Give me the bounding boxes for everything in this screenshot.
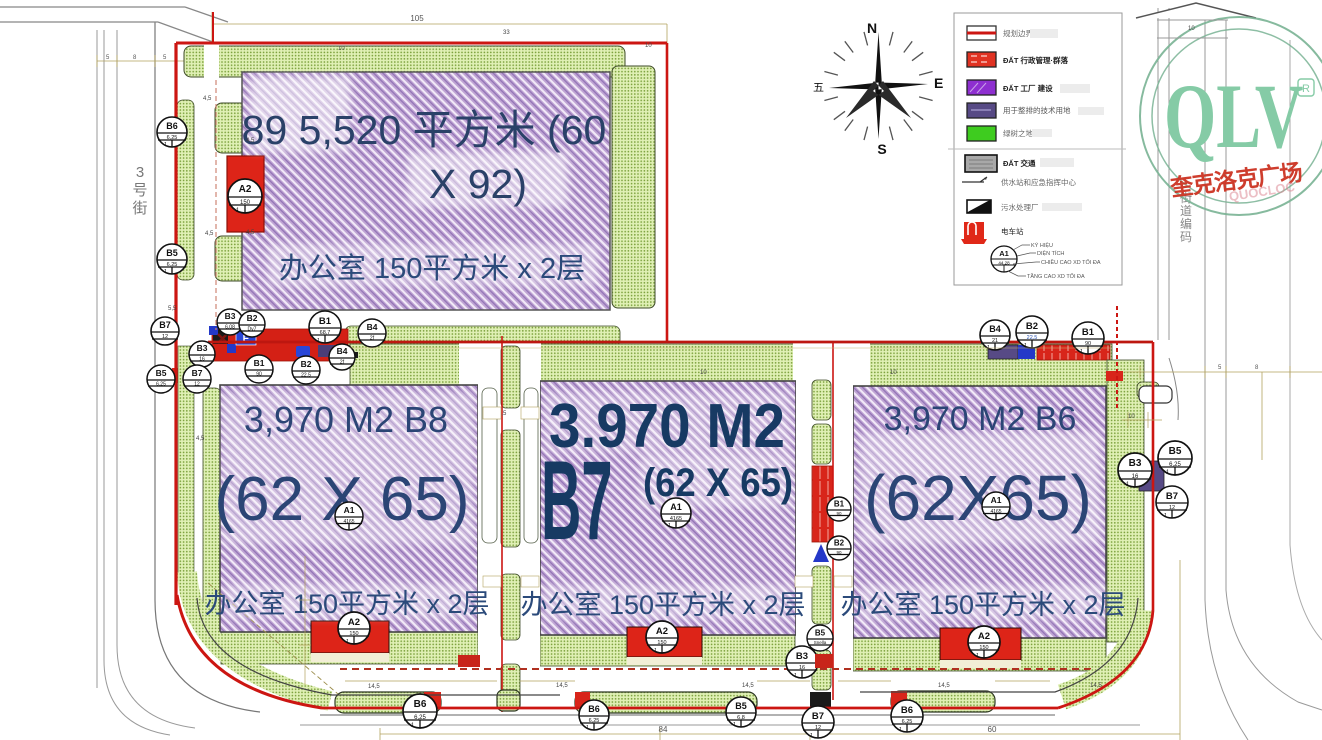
svg-text:B6: B6 [901, 705, 913, 716]
svg-text:B3: B3 [1129, 458, 1142, 469]
svg-text:办公室 150平方米 x 2层: 办公室 150平方米 x 2层 [279, 252, 585, 285]
svg-text:1: 1 [668, 523, 671, 529]
svg-text:12: 12 [194, 382, 200, 388]
svg-text:编: 编 [1180, 216, 1192, 231]
svg-text:21: 21 [992, 338, 998, 344]
svg-text:B3: B3 [796, 651, 808, 662]
svg-text:A1: A1 [344, 505, 355, 515]
svg-text:22,5: 22,5 [301, 373, 311, 379]
svg-text:供水站和应急指挥中心: 供水站和应急指挥中心 [1001, 177, 1076, 187]
svg-text:S: S [877, 141, 886, 157]
svg-text:电车站: 电车站 [1001, 226, 1024, 236]
svg-text:码: 码 [1180, 230, 1192, 244]
svg-text:4165: 4165 [670, 516, 682, 522]
svg-text:90: 90 [836, 550, 842, 555]
svg-text:2f: 2f [340, 360, 345, 366]
svg-text:6,8: 6,8 [737, 715, 745, 721]
svg-text:B4: B4 [367, 322, 378, 332]
svg-text:规划边界: 规划边界 [1003, 28, 1033, 38]
svg-text:10: 10 [890, 370, 897, 376]
svg-text:B5: B5 [815, 629, 826, 638]
svg-text:1: 1 [164, 142, 167, 148]
svg-text:2f: 2f [370, 336, 375, 342]
svg-text:16: 16 [1132, 474, 1139, 480]
svg-text:ĐẤT 工厂 建设: ĐẤT 工厂 建设 [1003, 83, 1053, 93]
svg-text:1: 1 [164, 269, 167, 275]
svg-text:B4: B4 [989, 324, 1001, 334]
svg-text:150: 150 [979, 645, 988, 651]
svg-text:90: 90 [256, 372, 262, 378]
svg-text:B5: B5 [1169, 446, 1182, 457]
svg-text:10: 10 [1128, 414, 1135, 420]
svg-text:6,25: 6,25 [902, 719, 913, 725]
svg-text:A1: A1 [670, 502, 682, 512]
svg-text:Snella: Snella [814, 640, 827, 645]
svg-text:84: 84 [659, 725, 668, 734]
svg-text:B6: B6 [166, 121, 178, 131]
svg-text:4,5: 4,5 [246, 138, 255, 144]
svg-text:B3: B3 [197, 343, 208, 353]
svg-text:10: 10 [645, 43, 652, 49]
svg-text:TẦNG CAO XD TỐI ĐA: TẦNG CAO XD TỐI ĐA [1027, 273, 1085, 280]
svg-text:4165: 4165 [990, 509, 1001, 515]
svg-text:6,25: 6,25 [156, 382, 166, 388]
svg-text:B7: B7 [812, 711, 824, 722]
svg-text:B5: B5 [735, 701, 747, 711]
svg-text:4,5: 4,5 [246, 230, 255, 236]
svg-text:89 5,520 平方米 (60: 89 5,520 平方米 (60 [242, 107, 607, 153]
svg-text:B7: B7 [1166, 491, 1178, 502]
svg-text:3: 3 [136, 164, 144, 181]
svg-text:60: 60 [988, 725, 997, 734]
svg-text:150: 150 [657, 640, 666, 646]
svg-text:CHIỀU CAO XD TỐI ĐA: CHIỀU CAO XD TỐI ĐA [1041, 259, 1101, 266]
svg-text:ĐẤT 行政管理·群落: ĐẤT 行政管理·群落 [1003, 55, 1068, 65]
svg-text:14,5: 14,5 [1090, 683, 1102, 689]
svg-text:14,5: 14,5 [556, 683, 568, 689]
svg-text:KÝ HIỆU: KÝ HIỆU [1031, 241, 1053, 249]
svg-text:B6: B6 [588, 704, 600, 714]
svg-text:6,25: 6,25 [167, 262, 178, 268]
svg-text:办公室 150平方米 x 2层: 办公室 150平方米 x 2层 [520, 590, 805, 620]
svg-text:B4: B4 [337, 346, 348, 356]
svg-text:B7: B7 [541, 438, 613, 563]
svg-text:10: 10 [1188, 26, 1195, 32]
svg-text:B6: B6 [414, 699, 427, 710]
svg-text:绿树之地: 绿树之地 [1003, 128, 1033, 138]
svg-text:B2: B2 [834, 539, 845, 548]
svg-text:A2: A2 [239, 184, 252, 195]
svg-text:Dv7: Dv7 [248, 327, 257, 333]
svg-text:B1: B1 [834, 500, 845, 509]
svg-text:A2: A2 [656, 626, 668, 637]
svg-text:1: 1 [794, 673, 797, 679]
svg-text:6,25: 6,25 [1169, 462, 1181, 468]
svg-text:B2: B2 [301, 359, 312, 369]
svg-text:14,5: 14,5 [368, 684, 380, 690]
svg-text:6,25: 6,25 [167, 135, 178, 141]
svg-text:10: 10 [700, 370, 707, 376]
svg-text:105: 105 [410, 14, 424, 23]
svg-text:1: 1 [733, 722, 736, 728]
svg-text:4165: 4165 [343, 519, 354, 525]
svg-text:B3: B3 [225, 311, 236, 321]
svg-text:ĐẤT 交通: ĐẤT 交通 [1003, 158, 1036, 168]
svg-text:6,08: 6,08 [225, 325, 235, 331]
svg-text:14,5: 14,5 [742, 683, 754, 689]
svg-text:5,5: 5,5 [168, 306, 177, 312]
svg-text:150: 150 [240, 200, 251, 206]
svg-text:(62 X 65): (62 X 65) [643, 461, 793, 505]
svg-text:12: 12 [1169, 505, 1175, 511]
svg-text:1: 1 [810, 733, 813, 739]
svg-text:B5: B5 [166, 248, 178, 258]
svg-text:DIỆN TÍCH: DIỆN TÍCH [1037, 249, 1064, 257]
svg-text:B1: B1 [319, 316, 332, 327]
svg-text:16: 16 [199, 357, 205, 363]
svg-text:A2: A2 [978, 631, 990, 642]
svg-text:B5: B5 [156, 368, 167, 378]
svg-text:道: 道 [1180, 204, 1192, 218]
svg-text:33: 33 [503, 30, 510, 36]
svg-text:1: 1 [586, 725, 589, 731]
svg-text:R: R [1302, 83, 1310, 95]
svg-text:16: 16 [799, 665, 805, 671]
svg-text:B7: B7 [159, 320, 171, 330]
svg-text:1: 1 [899, 727, 902, 733]
svg-text:150: 150 [349, 631, 358, 637]
svg-text:14,5: 14,5 [938, 683, 950, 689]
svg-text:90: 90 [1085, 341, 1091, 347]
svg-text:3,970 M2 B6: 3,970 M2 B6 [884, 400, 1077, 438]
svg-text:12: 12 [815, 725, 821, 731]
svg-text:用于整排的技术用地: 用于整排的技术用地 [1003, 105, 1071, 115]
svg-text:90: 90 [836, 511, 842, 516]
svg-text:22,5: 22,5 [1027, 335, 1038, 341]
svg-text:1: 1 [346, 639, 349, 645]
svg-text:办公室 150平方米 x 2层: 办公室 150平方米 x 2层 [840, 590, 1125, 620]
svg-text:街: 街 [132, 200, 147, 217]
svg-text:68,7: 68,7 [320, 330, 331, 336]
svg-text:4,5: 4,5 [196, 436, 205, 442]
svg-text:A1: A1 [999, 249, 1009, 258]
svg-text:B1: B1 [1082, 327, 1095, 338]
svg-text:A1: A1 [991, 495, 1002, 505]
svg-text:号: 号 [132, 182, 147, 199]
svg-text:QLV: QLV [1164, 66, 1303, 168]
svg-text:6,25: 6,25 [589, 718, 600, 724]
svg-text:1: 1 [1080, 349, 1083, 355]
svg-text:12: 12 [162, 334, 168, 340]
svg-text:N: N [867, 20, 877, 36]
svg-text:B2: B2 [1026, 321, 1038, 332]
svg-text:6,25: 6,25 [414, 715, 426, 721]
svg-text:B7: B7 [192, 368, 203, 378]
svg-text:10: 10 [338, 46, 345, 52]
svg-text:4,5: 4,5 [205, 231, 214, 237]
svg-text:1: 1 [976, 653, 979, 659]
svg-text:1: 1 [654, 648, 657, 654]
svg-text:1: 1 [317, 338, 320, 344]
svg-text:3,970 M2 B8: 3,970 M2 B8 [244, 399, 448, 440]
svg-text:(62X65): (62X65) [864, 462, 1092, 534]
svg-text:A2: A2 [348, 617, 360, 628]
svg-text:污水处理厂: 污水处理厂 [1001, 202, 1039, 212]
svg-text:1: 1 [1164, 513, 1167, 519]
svg-text:X 92): X 92) [429, 161, 527, 207]
svg-text:B2: B2 [247, 313, 258, 323]
svg-text:E: E [934, 75, 943, 91]
svg-text:44,28: 44,28 [998, 261, 1010, 266]
svg-text:五: 五 [813, 82, 824, 94]
svg-text:B1: B1 [254, 358, 265, 368]
svg-text:4,5: 4,5 [203, 96, 212, 102]
